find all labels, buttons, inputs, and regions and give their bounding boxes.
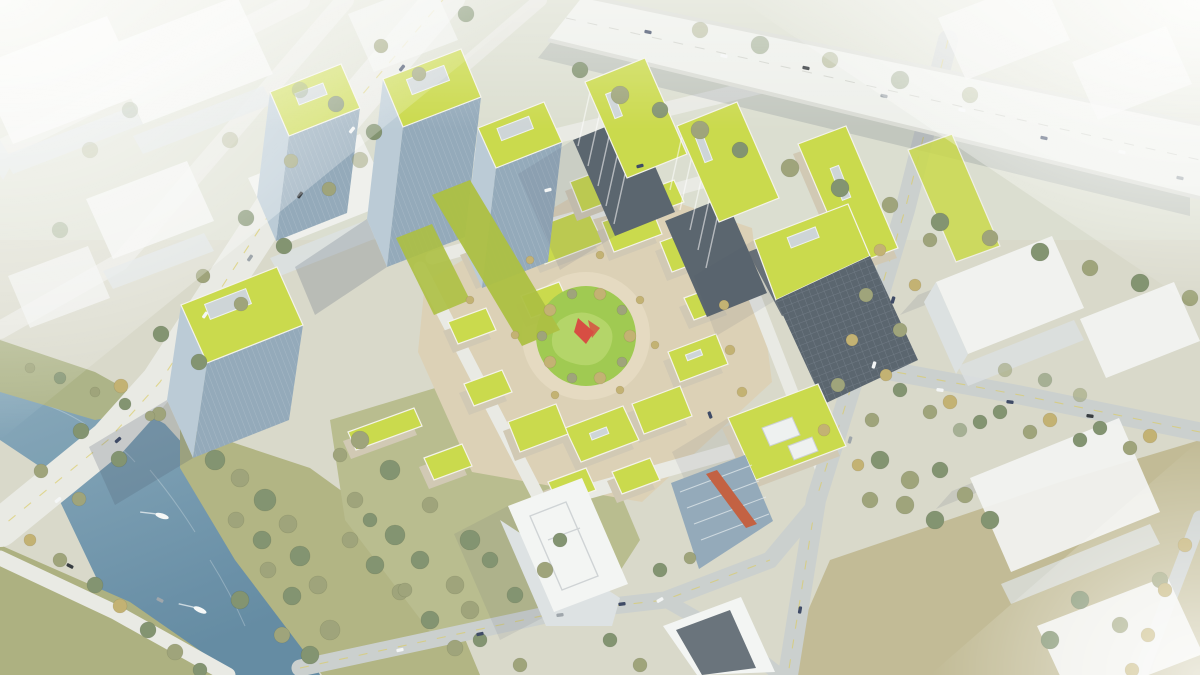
rendering-canvas: Bird's-eye architectural rendering of a … — [0, 0, 1200, 675]
aerial-rendering: Bird's-eye architectural rendering of a … — [0, 0, 1200, 675]
central-garden — [536, 286, 636, 386]
